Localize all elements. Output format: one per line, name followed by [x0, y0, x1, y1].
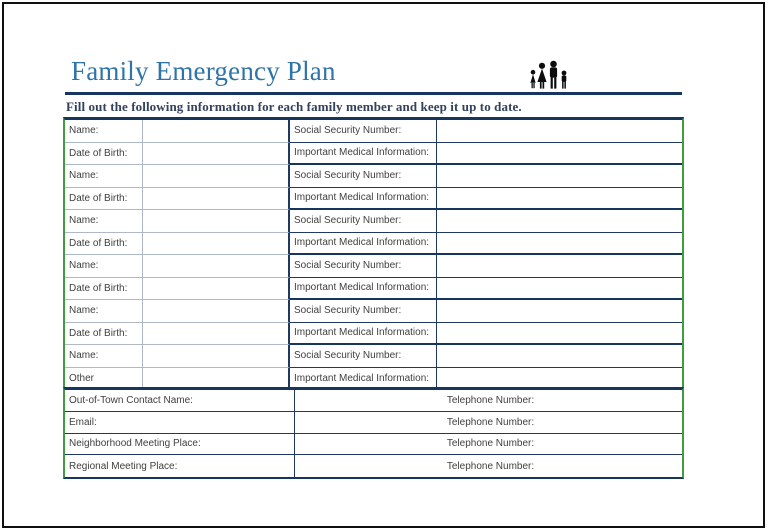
- page-title: Family Emergency Plan: [71, 56, 336, 87]
- name-label: Name:: [65, 345, 143, 368]
- medical-info-label: Important Medical Information:: [290, 188, 437, 211]
- dob-label: Date of Birth:: [65, 278, 143, 301]
- name-input-cell[interactable]: [143, 345, 290, 368]
- medical-info-label: Important Medical Information:: [290, 233, 437, 256]
- ssn-input-cell[interactable]: [437, 165, 682, 188]
- dob-input-cell[interactable]: [143, 233, 290, 256]
- ssn-label: Social Security Number:: [290, 120, 437, 143]
- name-input-cell[interactable]: [143, 210, 290, 233]
- name-label: Name:: [65, 120, 143, 143]
- medical-info-label: Important Medical Information:: [290, 278, 437, 301]
- telephone-label: Telephone Number:: [443, 438, 534, 449]
- dob-label: Date of Birth:: [65, 188, 143, 211]
- dob-input-cell[interactable]: [143, 323, 290, 346]
- dob-input-cell[interactable]: [143, 278, 290, 301]
- telephone-label: Telephone Number:: [443, 395, 534, 406]
- telephone-cell[interactable]: Telephone Number:: [295, 412, 682, 434]
- ssn-label: Social Security Number:: [290, 255, 437, 278]
- name-label: Name:: [65, 210, 143, 233]
- family-icon: [527, 59, 571, 89]
- emergency-contact-table: Out-of-Town Contact Name: Telephone Numb…: [63, 387, 684, 479]
- telephone-label: Telephone Number:: [443, 417, 534, 428]
- ssn-input-cell[interactable]: [437, 300, 682, 323]
- telephone-label: Telephone Number:: [443, 461, 534, 472]
- ssn-label: Social Security Number:: [290, 165, 437, 188]
- ssn-input-cell[interactable]: [437, 210, 682, 233]
- out-of-town-contact-label: Out-of-Town Contact Name:: [65, 390, 295, 412]
- telephone-cell[interactable]: Telephone Number:: [295, 455, 682, 477]
- ssn-label: Social Security Number:: [290, 345, 437, 368]
- title-underline: [65, 92, 682, 95]
- ssn-input-cell[interactable]: [437, 120, 682, 143]
- name-input-cell[interactable]: [143, 120, 290, 143]
- ssn-input-cell[interactable]: [437, 255, 682, 278]
- medical-info-label: Important Medical Information:: [290, 143, 437, 166]
- medical-info-input-cell[interactable]: [437, 143, 682, 166]
- name-input-cell[interactable]: [143, 165, 290, 188]
- dob-input-cell[interactable]: [143, 188, 290, 211]
- family-member-table: Name: Social Security Number: Date of Bi…: [63, 117, 684, 390]
- dob-input-cell[interactable]: [143, 143, 290, 166]
- medical-info-label: Important Medical Information:: [290, 323, 437, 346]
- medical-info-input-cell[interactable]: [437, 323, 682, 346]
- email-label: Email:: [65, 412, 295, 434]
- regional-meeting-place-label: Regional Meeting Place:: [65, 455, 295, 477]
- instructions-text: Fill out the following information for e…: [66, 99, 522, 115]
- medical-info-input-cell[interactable]: [437, 188, 682, 211]
- dob-label: Date of Birth:: [65, 323, 143, 346]
- name-input-cell[interactable]: [143, 300, 290, 323]
- ssn-label: Social Security Number:: [290, 300, 437, 323]
- name-label: Name:: [65, 255, 143, 278]
- dob-label: Date of Birth:: [65, 143, 143, 166]
- ssn-label: Social Security Number:: [290, 210, 437, 233]
- page: { "page": { "title": "Family Emergency P…: [0, 0, 768, 531]
- dob-label: Date of Birth:: [65, 233, 143, 256]
- medical-info-input-cell[interactable]: [437, 233, 682, 256]
- medical-info-input-cell[interactable]: [437, 278, 682, 301]
- neighborhood-meeting-place-label: Neighborhood Meeting Place:: [65, 434, 295, 456]
- telephone-cell[interactable]: Telephone Number:: [295, 434, 682, 456]
- telephone-cell[interactable]: Telephone Number:: [295, 390, 682, 412]
- name-label: Name:: [65, 300, 143, 323]
- ssn-input-cell[interactable]: [437, 345, 682, 368]
- name-input-cell[interactable]: [143, 255, 290, 278]
- name-label: Name:: [65, 165, 143, 188]
